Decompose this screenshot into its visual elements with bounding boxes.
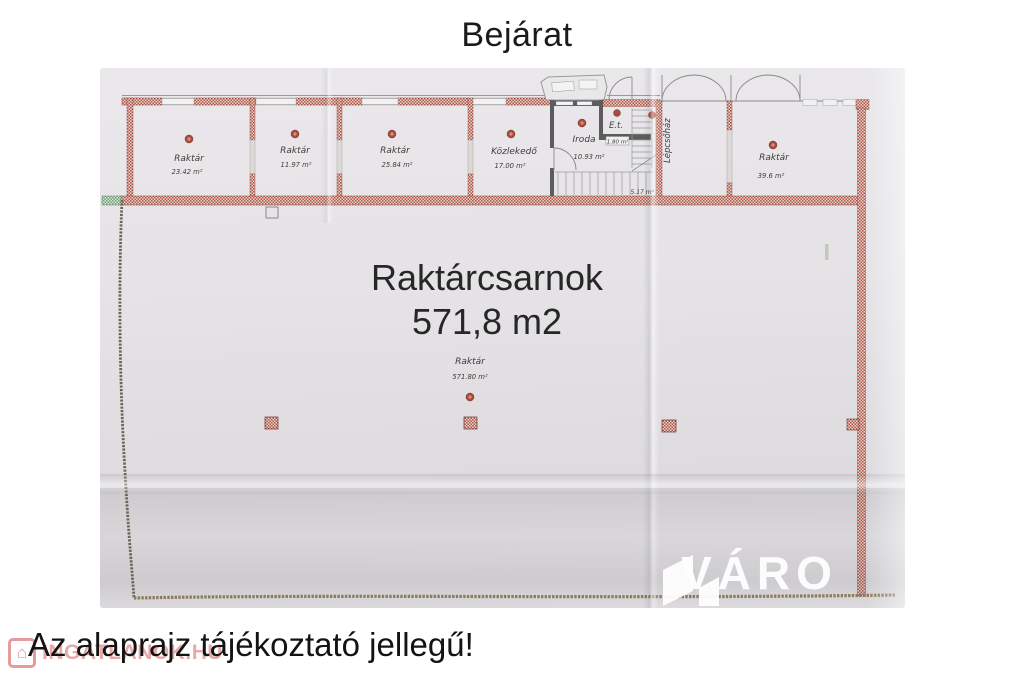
room-8-area: 39.6 m²: [758, 172, 785, 180]
watermark-varo: VÁRO: [655, 550, 838, 598]
partition-walls: [127, 98, 732, 197]
entrance-vestibule: [541, 75, 607, 100]
disclaimer-text: Az alaprajz tájékoztató jellegű!: [28, 626, 474, 664]
room-3-name: Raktár: [380, 146, 411, 156]
room-8-name: Raktár: [759, 153, 790, 163]
room-7-name: Lépcsőház: [662, 118, 673, 163]
hall-pillars: [265, 417, 676, 432]
room-4-name: Közlekedő: [491, 147, 537, 157]
room-6-name: E.t.: [609, 121, 623, 131]
room-2-area: 11.97 m²: [281, 161, 312, 169]
screenshot-root: Bejárat: [0, 0, 1024, 682]
stairs: [555, 108, 656, 195]
hall-name: Raktár: [455, 357, 486, 367]
room-3-area: 25.84 m²: [382, 161, 413, 169]
interior-main-wall: [102, 196, 865, 218]
room-6-area: 1.80 m²: [607, 139, 629, 146]
floorplan-paper: Raktár 23.42 m² Raktár 11.97 m² Raktár 2…: [100, 68, 905, 608]
hall-headline: Raktárcsarnok 571,8 m2: [287, 256, 687, 344]
room-2-name: Raktár: [280, 146, 311, 156]
room-4-area: 17.00 m²: [495, 162, 526, 170]
room-1-name: Raktár: [174, 154, 205, 164]
room-5-name: Iroda: [572, 135, 595, 145]
hall-headline-area: 571,8 m2: [287, 300, 687, 344]
office-walls: [550, 100, 651, 197]
entrance-door-arc: [603, 77, 660, 107]
double-door-arcs: [660, 75, 860, 101]
page-title: Bejárat: [0, 16, 1024, 55]
hall-headline-name: Raktárcsarnok: [287, 256, 687, 300]
room-1-area: 23.42 m²: [172, 168, 203, 176]
room-7-area: 5.17 m²: [630, 189, 654, 196]
hall-area: 571.80 m²: [452, 373, 488, 381]
varo-logo-icon: [655, 550, 735, 607]
room-5-area: 10.93 m²: [574, 153, 605, 161]
right-wall: [825, 108, 866, 596]
